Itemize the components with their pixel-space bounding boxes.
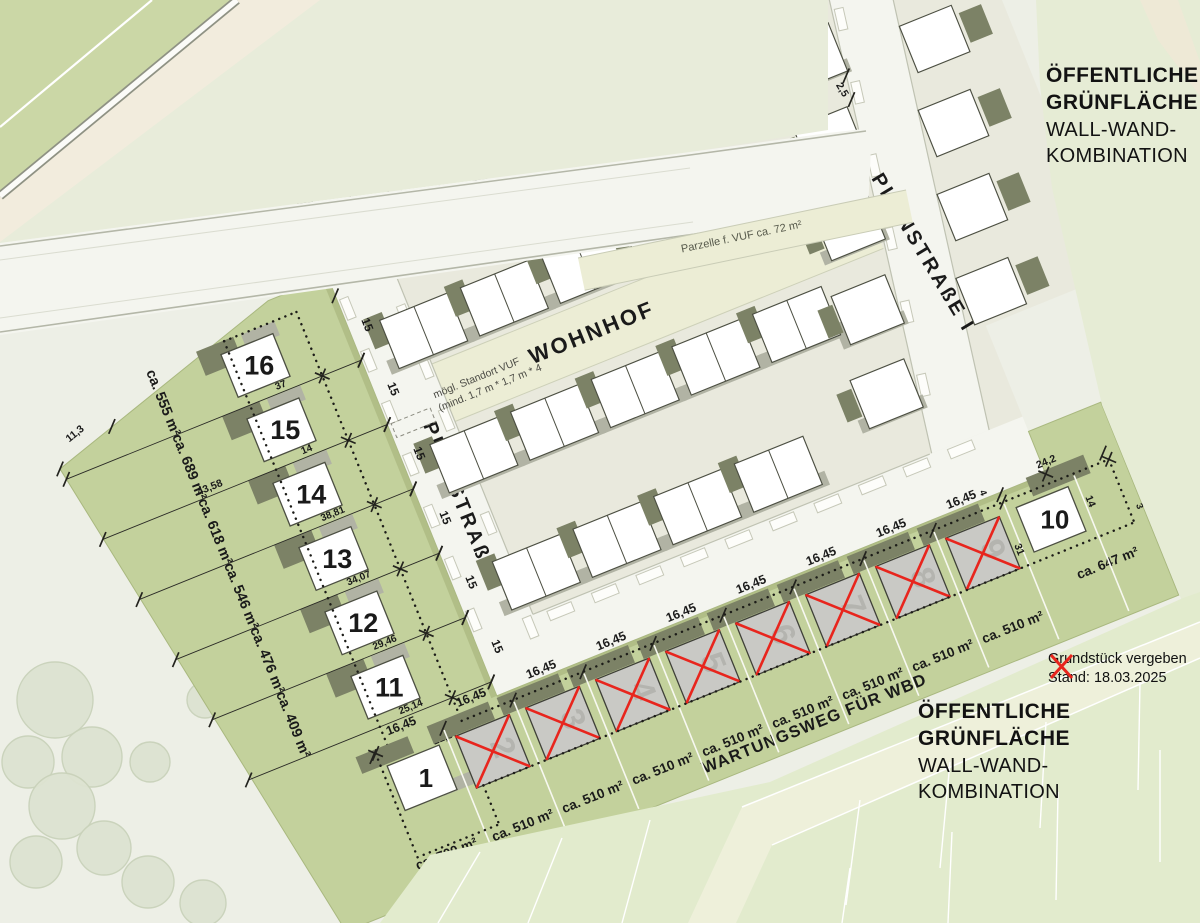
plot-number: 12 xyxy=(348,608,378,638)
plot-number: 16 xyxy=(244,351,274,381)
public-green-line: GRÜNFLÄCHE xyxy=(1046,89,1199,116)
tree-icon xyxy=(10,836,62,888)
public-green-label-bottom-right: ÖFFENTLICHE GRÜNFLÄCHE WALL-WAND- KOMBIN… xyxy=(918,698,1071,805)
site-plan: WOHNHOFWOHNHOFPLANSTRAßE IPLANSTRAßE IWA… xyxy=(0,0,1200,923)
plot-number: 13 xyxy=(322,544,352,574)
plot-number: 10 xyxy=(1040,505,1069,535)
public-green-line: KOMBINATION xyxy=(918,779,1071,805)
sold-cross-icon xyxy=(1048,650,1076,680)
plot-number: 1 xyxy=(419,763,433,793)
public-green-line: WALL-WAND- xyxy=(1046,117,1199,143)
tree-icon xyxy=(130,742,170,782)
public-green-line: GRÜNFLÄCHE xyxy=(918,725,1071,752)
public-green-line: KOMBINATION xyxy=(1046,143,1199,169)
public-green-line: ÖFFENTLICHE xyxy=(918,698,1071,725)
plot-number: 14 xyxy=(296,479,326,509)
public-green-label-top-right: ÖFFENTLICHE GRÜNFLÄCHE WALL-WAND- KOMBIN… xyxy=(1046,62,1199,169)
public-green-line: WALL-WAND- xyxy=(918,753,1071,779)
plot-number: 11 xyxy=(375,672,404,702)
legend: Grundstück vergeben Stand: 18.03.2025 xyxy=(1048,650,1187,688)
tree-icon xyxy=(17,662,93,738)
public-green-line: ÖFFENTLICHE xyxy=(1046,62,1199,89)
tree-icon xyxy=(77,821,131,875)
tree-icon xyxy=(180,880,226,923)
tree-icon xyxy=(122,856,174,908)
plot-number: 15 xyxy=(270,415,300,445)
